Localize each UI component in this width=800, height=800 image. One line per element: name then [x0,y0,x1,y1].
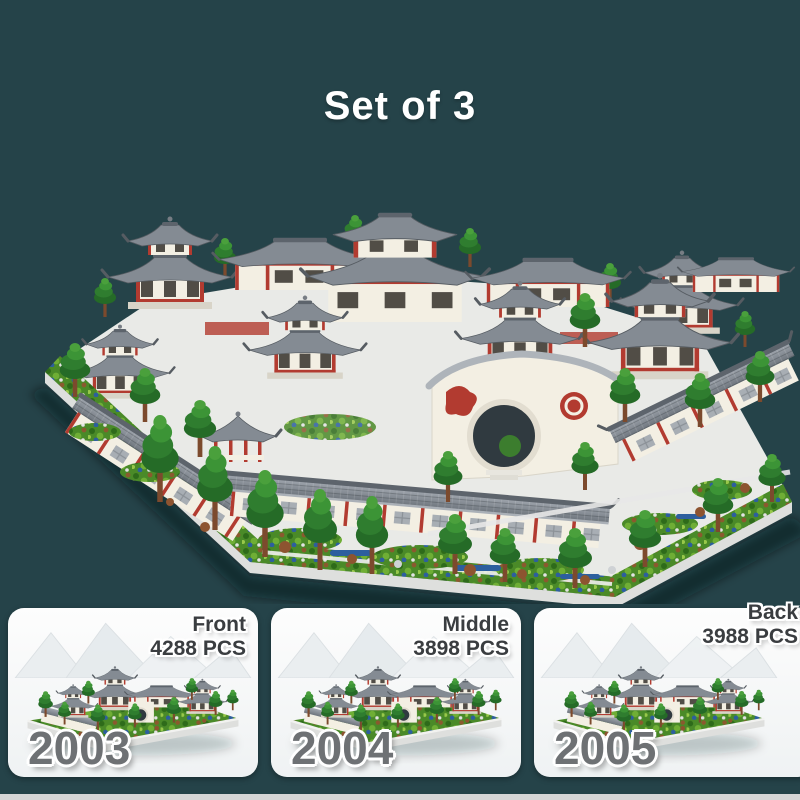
bottom-strip [0,794,800,800]
card-pieces: 4288 PCS [150,637,246,661]
card-label: Back 3988 PCS [702,601,798,649]
card-pieces: 3898 PCS [413,637,509,661]
card-label: Middle 3898 PCS [413,613,509,661]
page-title: Set of 3 [0,84,800,129]
card-position: Back [702,601,798,625]
variant-card-middle: Middle 3898 PCS 2004 [271,608,521,777]
card-label: Front 4288 PCS [150,613,246,661]
card-model-number: 2005 [554,721,656,775]
variant-card-front: Front 4288 PCS 2003 [8,608,258,777]
product-image-page: { "title": "Set of 3", "cards": [ { "pos… [0,0,800,800]
main-product-photo [0,172,800,604]
variant-card-back: Back 3988 PCS 2005 [534,608,800,777]
card-pieces: 3988 PCS [702,625,798,649]
variant-cards: Front 4288 PCS 2003 Middle 3898 PCS 2004… [8,608,800,777]
card-model-number: 2003 [28,721,130,775]
card-position: Middle [413,613,509,637]
card-model-number: 2004 [291,721,393,775]
card-position: Front [150,613,246,637]
